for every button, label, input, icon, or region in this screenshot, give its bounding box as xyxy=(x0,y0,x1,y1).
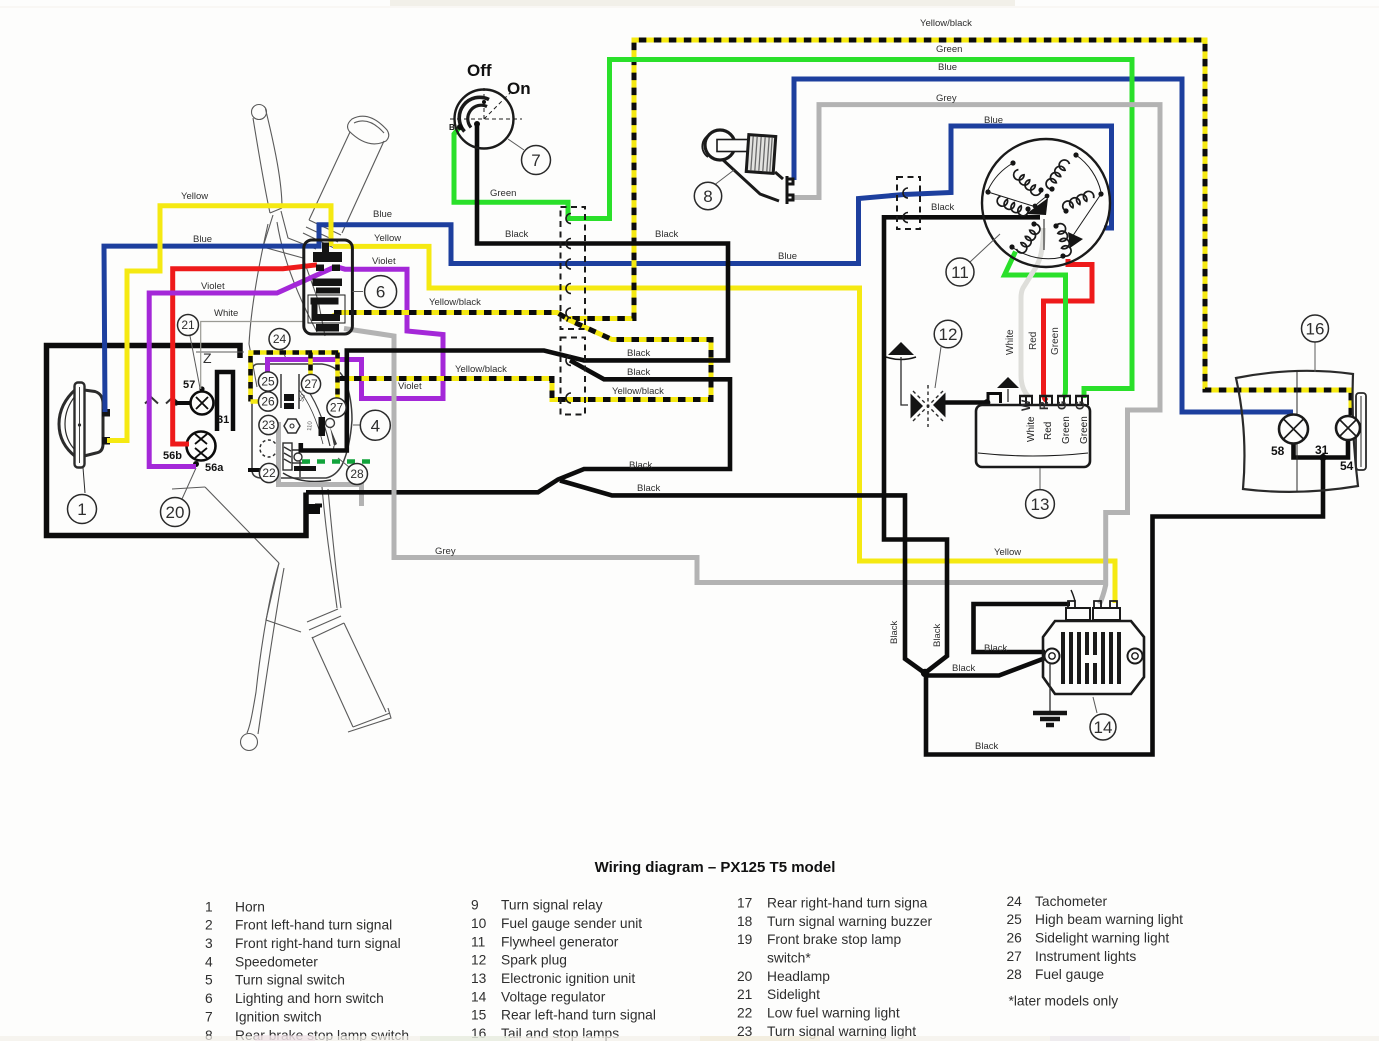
svg-text:7: 7 xyxy=(205,1009,213,1024)
svg-text:14: 14 xyxy=(1094,718,1113,737)
svg-text:B: B xyxy=(449,123,455,132)
svg-text:58: 58 xyxy=(1271,444,1285,458)
svg-text:Green: Green xyxy=(936,44,962,55)
svg-text:26: 26 xyxy=(1007,931,1023,946)
svg-text:Black: Black xyxy=(952,663,975,674)
svg-text:Grey: Grey xyxy=(435,546,456,557)
svg-text:10: 10 xyxy=(471,916,487,931)
svg-text:56b: 56b xyxy=(163,450,182,462)
svg-text:24: 24 xyxy=(273,332,287,346)
svg-text:11: 11 xyxy=(471,934,485,949)
svg-text:14: 14 xyxy=(471,989,487,1004)
svg-text:Black: Black xyxy=(629,460,652,471)
svg-text:Ignition switch: Ignition switch xyxy=(235,1009,322,1024)
svg-text:W: W xyxy=(1019,399,1033,411)
svg-text:Rear left-hand turn signal: Rear left-hand turn signal xyxy=(501,1008,656,1023)
svg-text:57: 57 xyxy=(183,379,195,391)
svg-text:Violet: Violet xyxy=(201,281,225,292)
svg-text:Fuel gauge: Fuel gauge xyxy=(1035,967,1104,982)
svg-text:18: 18 xyxy=(737,914,753,929)
svg-text:switch*: switch* xyxy=(767,951,811,966)
svg-text:4: 4 xyxy=(205,954,213,969)
svg-text:28: 28 xyxy=(1007,967,1023,982)
svg-text:1: 1 xyxy=(77,500,86,519)
svg-text:Front brake stop lamp: Front brake stop lamp xyxy=(767,932,902,947)
svg-text:Electronic ignition unit: Electronic ignition unit xyxy=(501,971,635,986)
svg-text:Fuel gauge sender unit: Fuel gauge sender unit xyxy=(501,916,642,931)
svg-text:8: 8 xyxy=(703,187,712,206)
svg-text:13: 13 xyxy=(471,971,487,986)
svg-text:24: 24 xyxy=(1007,894,1023,909)
svg-text:Yellow/black: Yellow/black xyxy=(455,364,507,375)
svg-text:Red: Red xyxy=(1043,422,1054,440)
svg-text:Blue: Blue xyxy=(778,251,797,262)
svg-text:Violet: Violet xyxy=(398,381,422,392)
svg-text:28: 28 xyxy=(350,467,364,481)
svg-text:19: 19 xyxy=(737,932,753,947)
svg-text:21: 21 xyxy=(181,318,195,332)
svg-text:G: G xyxy=(1055,401,1069,410)
svg-text:17: 17 xyxy=(737,896,752,911)
svg-text:Lighting and horn switch: Lighting and horn switch xyxy=(235,991,384,1006)
svg-text:Sidelight warning light: Sidelight warning light xyxy=(1035,931,1169,946)
svg-text:Violet: Violet xyxy=(372,256,396,267)
svg-text:Instrument lights: Instrument lights xyxy=(1035,949,1136,964)
svg-text:12: 12 xyxy=(471,953,486,968)
svg-text:Black: Black xyxy=(984,643,1007,654)
svg-text:20: 20 xyxy=(166,503,185,522)
svg-text:Yellow/black: Yellow/black xyxy=(920,18,972,29)
svg-text:110: 110 xyxy=(307,420,314,431)
svg-text:Yellow/black: Yellow/black xyxy=(429,297,481,308)
svg-text:On: On xyxy=(507,79,531,98)
svg-text:Black: Black xyxy=(627,348,650,359)
svg-text:High beam warning light: High beam warning light xyxy=(1035,912,1183,927)
svg-text:Z: Z xyxy=(203,350,212,366)
svg-text:Yellow: Yellow xyxy=(374,233,401,244)
svg-text:Yellow/black: Yellow/black xyxy=(612,386,664,397)
svg-text:Low fuel warning light: Low fuel warning light xyxy=(767,1006,900,1021)
svg-text:6: 6 xyxy=(205,991,213,1006)
svg-text:21: 21 xyxy=(737,987,752,1002)
svg-text:4: 4 xyxy=(371,416,380,435)
svg-text:Green: Green xyxy=(1061,416,1072,444)
svg-text:Turn signal warning buzzer: Turn signal warning buzzer xyxy=(767,914,933,929)
svg-text:5: 5 xyxy=(205,973,213,988)
svg-text:27: 27 xyxy=(1007,949,1022,964)
svg-text:2: 2 xyxy=(205,918,213,933)
svg-text:7: 7 xyxy=(531,151,540,170)
svg-text:White: White xyxy=(214,308,238,319)
svg-text:Red: Red xyxy=(1028,332,1039,350)
svg-text:Green: Green xyxy=(1079,416,1090,444)
svg-text:1: 1 xyxy=(205,899,213,914)
svg-text:White: White xyxy=(1026,416,1037,442)
svg-text:Black: Black xyxy=(505,229,528,240)
svg-text:Speedometer: Speedometer xyxy=(235,954,318,969)
svg-text:Voltage regulator: Voltage regulator xyxy=(501,989,606,1004)
svg-text:56a: 56a xyxy=(205,462,224,474)
svg-text:22: 22 xyxy=(262,466,276,480)
svg-text:Green: Green xyxy=(490,188,516,199)
svg-text:6: 6 xyxy=(376,283,385,302)
svg-text:31: 31 xyxy=(1315,443,1329,457)
svg-text:26: 26 xyxy=(261,395,275,409)
svg-text:Off: Off xyxy=(467,61,492,80)
svg-text:Horn: Horn xyxy=(235,899,265,914)
svg-text:16: 16 xyxy=(1306,320,1325,339)
svg-text:Sidelight: Sidelight xyxy=(767,987,820,1002)
svg-text:Yellow: Yellow xyxy=(181,191,208,202)
svg-text:Black: Black xyxy=(975,741,998,752)
svg-text:Flywheel generator: Flywheel generator xyxy=(501,934,619,949)
svg-text:22: 22 xyxy=(737,1006,752,1021)
svg-text:Turn signal relay: Turn signal relay xyxy=(501,898,603,913)
svg-text:13: 13 xyxy=(1031,495,1050,514)
svg-text:Tachometer: Tachometer xyxy=(1035,894,1107,909)
svg-text:Blue: Blue xyxy=(984,115,1003,126)
svg-text:Yellow: Yellow xyxy=(994,547,1021,558)
svg-text:Black: Black xyxy=(627,367,650,378)
svg-text:15: 15 xyxy=(471,1008,487,1023)
svg-text:Blue: Blue xyxy=(938,62,957,73)
svg-text:White: White xyxy=(1005,329,1016,355)
svg-text:Grey: Grey xyxy=(936,93,957,104)
svg-text:Front right-hand turn signal: Front right-hand turn signal xyxy=(235,936,401,951)
svg-text:Blue: Blue xyxy=(373,209,392,220)
svg-text:R: R xyxy=(1037,401,1051,410)
svg-text:54: 54 xyxy=(1340,459,1354,473)
svg-text:Black: Black xyxy=(655,229,678,240)
svg-text:Blue: Blue xyxy=(193,234,212,245)
svg-text:27: 27 xyxy=(330,401,344,415)
svg-text:27: 27 xyxy=(304,377,318,391)
svg-text:G: G xyxy=(1073,401,1087,410)
svg-text:Spark plug: Spark plug xyxy=(501,953,567,968)
svg-text:Wiring diagram – PX125 T5 mode: Wiring diagram – PX125 T5 model xyxy=(595,859,836,876)
svg-text:Black: Black xyxy=(932,624,943,647)
svg-text:20: 20 xyxy=(737,969,753,984)
svg-text:25: 25 xyxy=(1007,912,1023,927)
svg-text:Front left-hand turn signal: Front left-hand turn signal xyxy=(235,918,392,933)
svg-text:Turn signal switch: Turn signal switch xyxy=(235,973,345,988)
svg-text:Black: Black xyxy=(889,621,900,644)
svg-text:Black: Black xyxy=(637,483,660,494)
svg-text:*later models only: *later models only xyxy=(1009,994,1119,1009)
svg-text:11: 11 xyxy=(951,263,969,282)
svg-text:3: 3 xyxy=(205,936,213,951)
svg-text:31: 31 xyxy=(217,414,229,426)
svg-text:Black: Black xyxy=(931,202,954,213)
svg-text:Headlamp: Headlamp xyxy=(767,969,830,984)
svg-text:Green: Green xyxy=(1050,327,1061,355)
svg-text:Rear right-hand turn signa: Rear right-hand turn signa xyxy=(767,896,928,911)
svg-text:23: 23 xyxy=(262,418,276,432)
svg-text:9: 9 xyxy=(471,898,479,913)
svg-text:25: 25 xyxy=(261,375,275,389)
svg-text:12: 12 xyxy=(939,325,958,344)
